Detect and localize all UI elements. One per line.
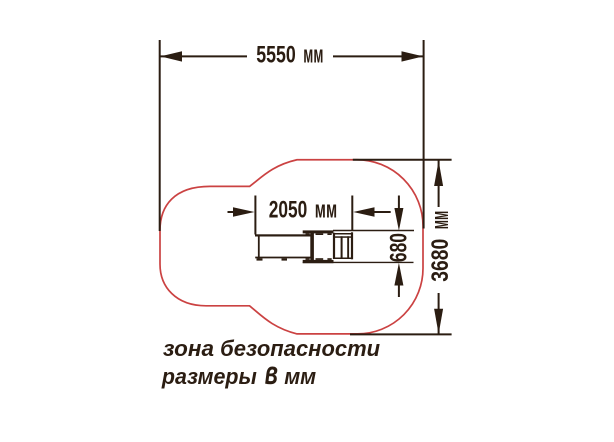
- svg-text:680: 680: [386, 233, 413, 262]
- svg-text:3680: 3680: [427, 239, 454, 282]
- svg-text:2050: 2050: [269, 196, 308, 223]
- svg-text:мм: мм: [427, 211, 454, 230]
- svg-text:размеры: размеры: [161, 364, 257, 389]
- svg-text:зона: зона: [163, 336, 214, 361]
- svg-text:5550: 5550: [256, 41, 296, 68]
- svg-text:в: в: [265, 354, 278, 391]
- svg-text:мм: мм: [315, 196, 337, 223]
- svg-text:мм: мм: [284, 364, 316, 389]
- svg-text:безопасности: безопасности: [220, 336, 381, 361]
- svg-text:мм: мм: [303, 41, 323, 68]
